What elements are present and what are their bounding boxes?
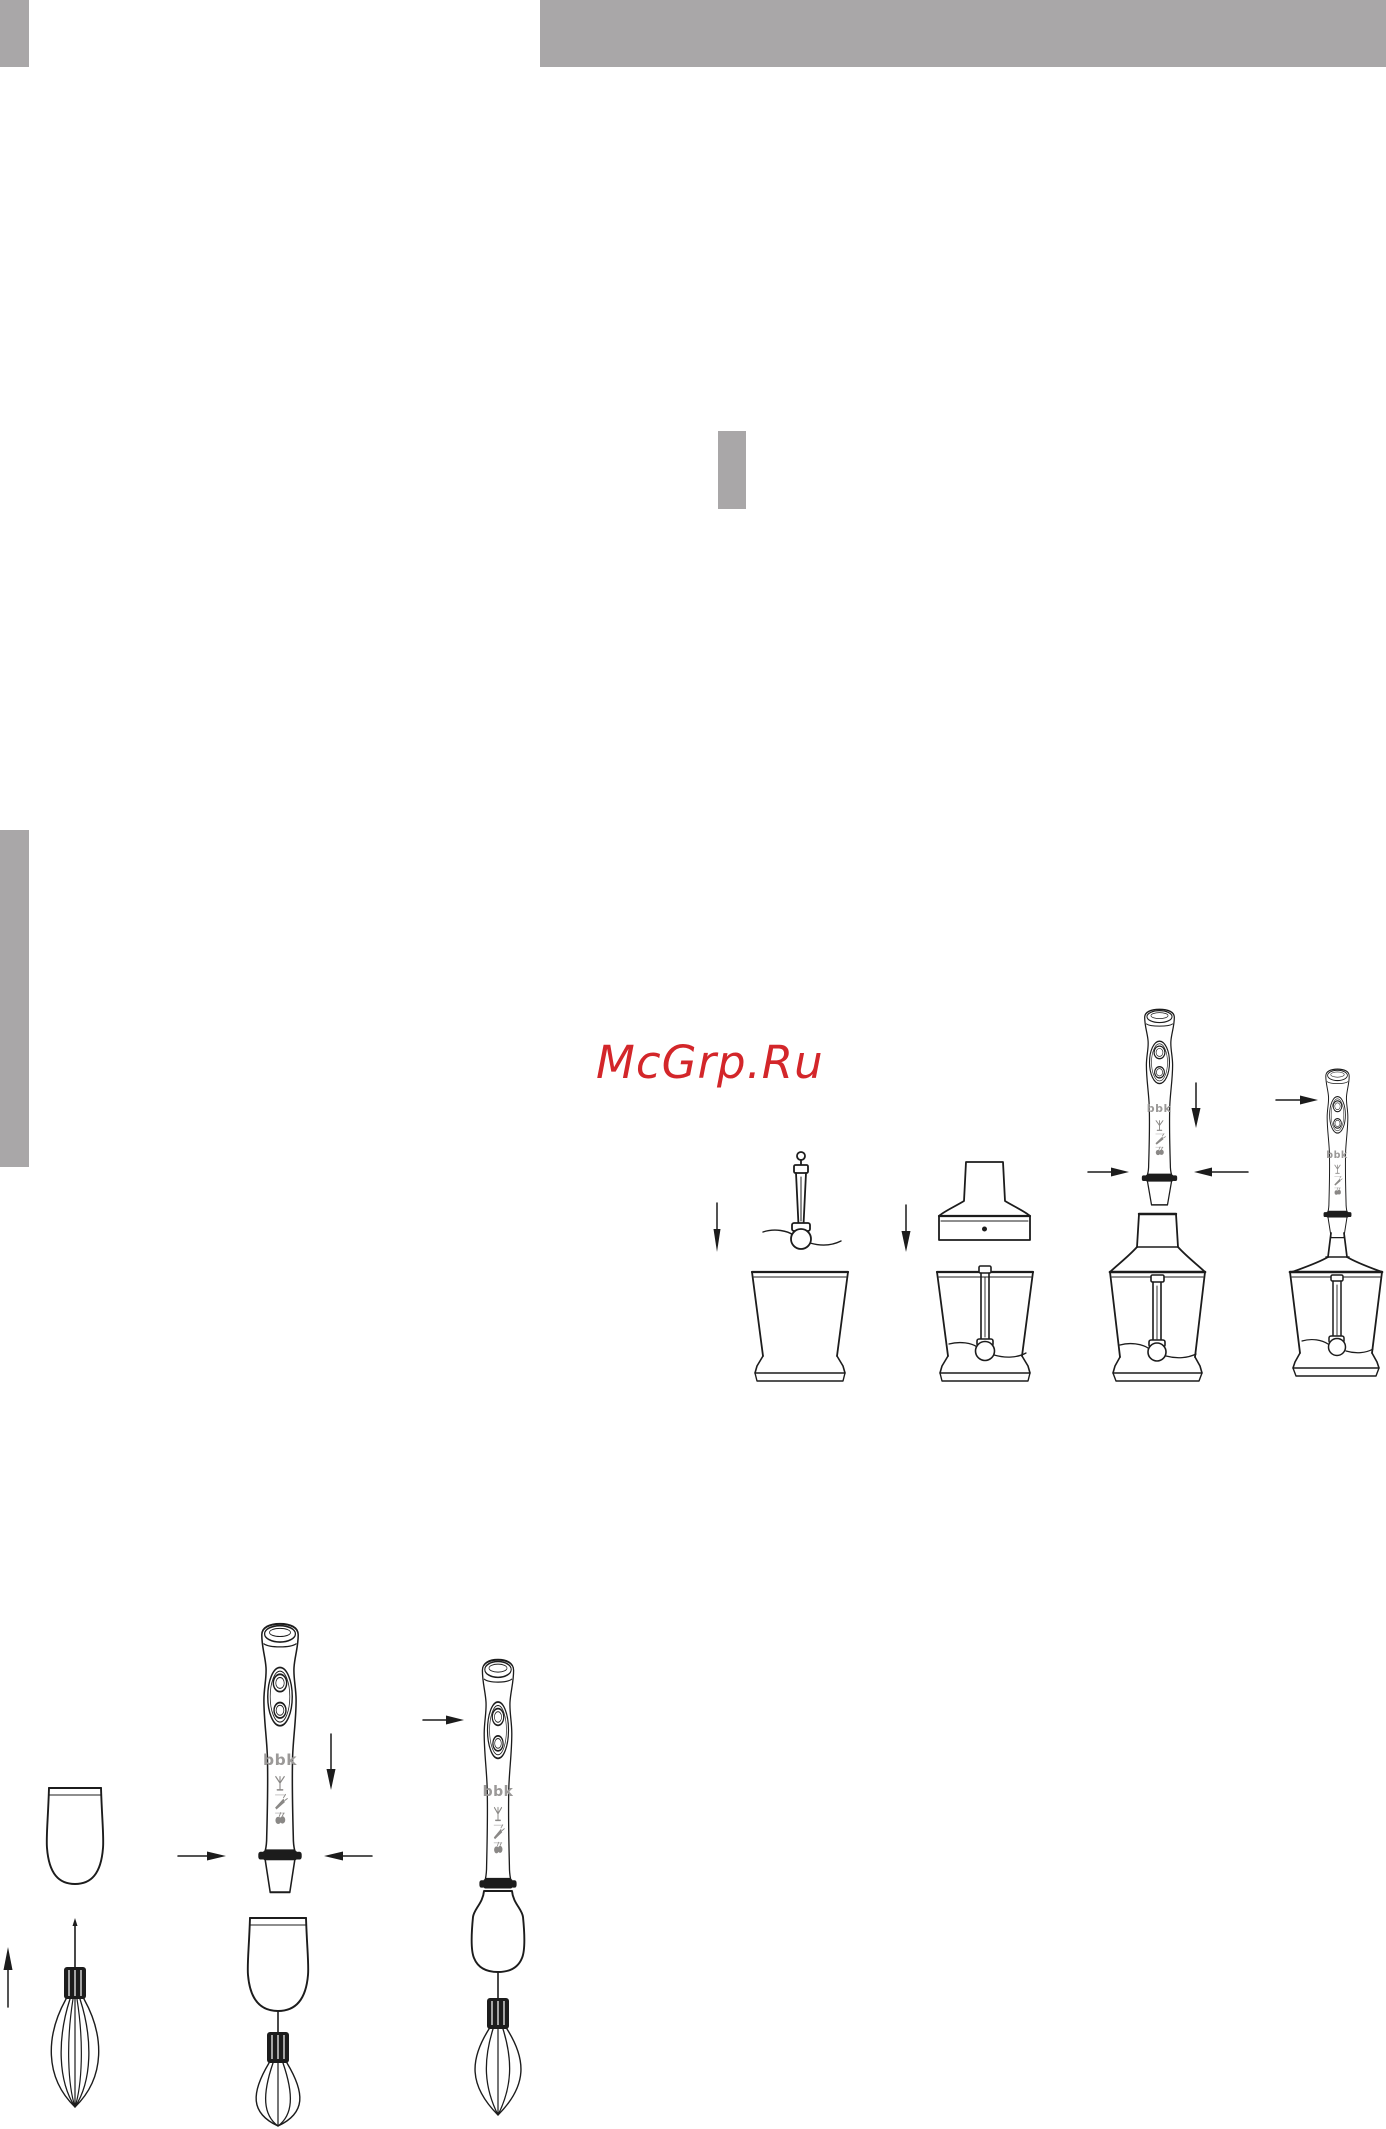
assembled-whisk-illustration [472,1660,525,2115]
bbk-logo-text: bbk [263,1751,297,1769]
chopper-bowl-with-blade-illustration [937,1266,1033,1381]
right-arrow-icon [1276,1096,1318,1105]
assembled-chopper-illustration [1290,1069,1382,1376]
down-arrow-icon [1192,1083,1201,1128]
bbk-logo-text: bbk [1147,1102,1172,1115]
whisk-illustration [51,1918,98,2107]
whisk-step-attach-motor: bbk [178,1624,372,2126]
whisk-step-assembled: bbk [423,1660,524,2115]
bbk-logo-text: bbk [483,1784,514,1800]
inward-arrow-left-icon [178,1852,226,1861]
down-arrow-icon [902,1205,911,1252]
inward-arrow-right-icon [1194,1168,1248,1177]
bbk-logo-text: bbk [1326,1150,1348,1161]
chopper-bowl-illustration [752,1272,848,1381]
section-marker-bar [718,431,746,509]
chopper-step-attach-motor: bbk [1088,1009,1248,1381]
whisk-step-parts [4,1788,104,2107]
chopper-bowl-with-lid-illustration [1110,1214,1205,1381]
chopper-blade-illustration [763,1152,841,1249]
manual-page: McGrp.Ru [0,0,1386,2129]
whisk-coupling-cup-illustration [47,1788,104,1884]
chopper-step-attach-lid [902,1162,1034,1381]
top-left-gray-bar [0,0,29,67]
chopper-step-assembled: bbk [1276,1069,1382,1376]
whisk-coupling-cup-illustration [248,1918,309,2011]
left-margin-gray-bar [0,830,29,1167]
inward-arrow-right-icon [324,1852,372,1861]
inward-arrow-left-icon [1088,1168,1129,1177]
chopper-step-insert-blade [714,1152,849,1381]
whisk-assembly-figure: bbk [0,1615,540,2129]
chopper-assembly-figure: bbk [700,995,1386,1400]
whisk-illustration [256,2011,300,2126]
top-right-gray-bar [540,0,1386,67]
chopper-lid-illustration [939,1162,1030,1240]
right-arrow-icon [423,1716,464,1725]
down-arrow-icon [714,1203,721,1252]
up-arrow-icon [4,1947,13,2007]
down-arrow-icon [327,1734,336,1790]
